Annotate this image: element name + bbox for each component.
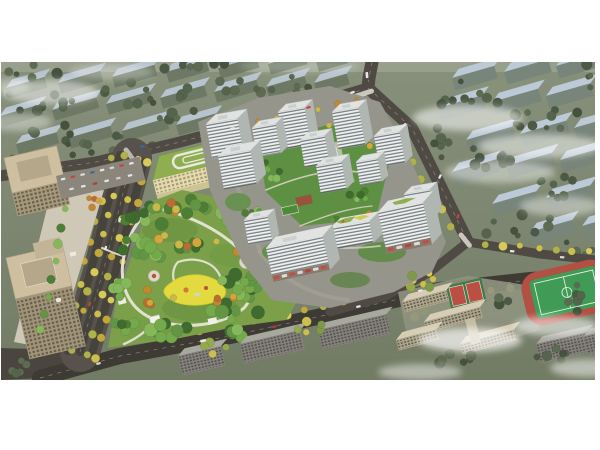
render-area xyxy=(0,44,600,380)
tree xyxy=(568,176,576,184)
tree xyxy=(14,71,20,77)
tree xyxy=(134,199,142,207)
tree xyxy=(564,298,572,306)
tree xyxy=(83,287,92,296)
tree xyxy=(154,319,167,332)
tree xyxy=(586,248,592,254)
tree xyxy=(155,331,166,342)
tree xyxy=(181,207,193,219)
tree xyxy=(105,212,112,219)
play-equipment xyxy=(204,286,208,290)
tree xyxy=(510,227,518,235)
tree xyxy=(95,249,103,257)
tree xyxy=(439,154,445,160)
tree xyxy=(276,168,283,175)
tree xyxy=(91,354,100,363)
tree xyxy=(193,62,203,72)
tree xyxy=(209,350,217,358)
tree xyxy=(534,354,540,360)
tree xyxy=(97,334,105,342)
tree xyxy=(53,258,59,264)
tree xyxy=(482,229,492,239)
tree xyxy=(524,109,530,115)
tree xyxy=(160,63,170,73)
tree xyxy=(460,94,468,102)
tree xyxy=(460,359,467,366)
tree xyxy=(183,242,191,250)
tree xyxy=(133,99,143,109)
tree xyxy=(143,286,151,294)
tree xyxy=(302,317,312,327)
tree xyxy=(294,83,300,89)
tree xyxy=(573,307,582,316)
tree xyxy=(470,145,477,152)
tree xyxy=(301,306,308,313)
tree xyxy=(268,86,275,93)
tree xyxy=(407,283,416,292)
tree xyxy=(357,191,365,199)
tree xyxy=(547,111,557,121)
car xyxy=(365,72,368,78)
tree xyxy=(108,297,115,304)
tree xyxy=(491,219,497,225)
tree xyxy=(113,283,123,293)
tree xyxy=(187,63,194,70)
tree xyxy=(88,330,97,339)
tree xyxy=(550,181,557,188)
tree xyxy=(125,212,135,222)
tree xyxy=(102,316,110,324)
play-equipment xyxy=(183,287,188,292)
tree xyxy=(552,345,560,353)
tree xyxy=(120,152,128,160)
tree xyxy=(65,142,70,147)
tree xyxy=(587,73,593,79)
tree xyxy=(108,154,115,161)
tree xyxy=(47,275,56,284)
tree xyxy=(147,300,153,306)
tree xyxy=(110,193,117,200)
tree xyxy=(70,152,76,158)
tree xyxy=(102,85,110,93)
tree xyxy=(482,241,489,248)
tree xyxy=(192,238,201,247)
tree xyxy=(36,325,44,333)
tree xyxy=(574,282,580,288)
tree xyxy=(536,245,543,252)
tree xyxy=(557,125,564,132)
tree xyxy=(494,293,503,302)
scene-canvas xyxy=(0,0,600,450)
cloud xyxy=(514,316,598,336)
tree xyxy=(86,196,91,201)
tree xyxy=(407,271,416,280)
tree xyxy=(143,87,149,93)
tree xyxy=(223,344,230,351)
slab-roof xyxy=(266,45,312,64)
tree xyxy=(77,281,84,288)
tree xyxy=(52,68,63,79)
tree xyxy=(179,61,187,69)
tree xyxy=(326,122,332,128)
tree xyxy=(155,217,168,230)
tree xyxy=(176,93,184,101)
tree xyxy=(122,236,130,244)
tree xyxy=(587,84,593,90)
tree xyxy=(90,268,98,276)
tree xyxy=(59,103,67,111)
tree xyxy=(96,198,102,204)
tree xyxy=(12,369,21,378)
tree xyxy=(80,307,86,313)
tree xyxy=(528,121,537,130)
tree xyxy=(219,59,229,69)
tree xyxy=(230,86,240,96)
tree xyxy=(16,107,23,114)
cloud xyxy=(240,59,360,73)
cloud xyxy=(445,161,555,183)
tree xyxy=(542,351,552,361)
tree xyxy=(144,241,157,254)
tree xyxy=(84,351,91,358)
tree xyxy=(100,231,107,238)
tree xyxy=(116,293,124,301)
slab-roof xyxy=(314,44,352,61)
tree xyxy=(229,268,242,281)
tree xyxy=(147,96,153,102)
tree xyxy=(303,329,309,335)
tree xyxy=(40,310,48,318)
cloud xyxy=(378,364,462,380)
tree xyxy=(161,232,168,239)
tree xyxy=(18,357,25,364)
cloud xyxy=(70,64,154,80)
tree xyxy=(104,273,112,281)
tree xyxy=(200,342,208,350)
tree xyxy=(112,132,120,140)
tree xyxy=(227,315,235,323)
car xyxy=(510,250,515,253)
tree xyxy=(294,326,302,334)
tree xyxy=(572,108,582,118)
tree xyxy=(171,325,183,337)
tree xyxy=(254,86,260,92)
apartment-tower xyxy=(331,99,374,149)
tree xyxy=(170,294,177,301)
tree xyxy=(117,320,126,329)
tree xyxy=(152,203,160,211)
tree xyxy=(84,140,92,148)
tree xyxy=(559,350,567,358)
tree xyxy=(430,140,438,148)
tree xyxy=(190,107,198,115)
tree xyxy=(215,77,224,86)
courtyard-lawn xyxy=(225,193,251,211)
cloud xyxy=(418,328,522,352)
tree xyxy=(215,305,229,319)
flower-bed xyxy=(152,274,156,278)
tree xyxy=(88,149,94,155)
tree xyxy=(231,324,243,336)
aerial-masterplan-rendering xyxy=(0,0,600,450)
tree xyxy=(549,191,555,197)
tree xyxy=(318,321,326,329)
tree xyxy=(564,240,569,245)
tree xyxy=(157,115,163,121)
cloud xyxy=(478,134,600,158)
tree xyxy=(273,174,281,182)
tree xyxy=(62,206,68,212)
tree xyxy=(230,293,236,299)
tree xyxy=(123,100,133,110)
tree xyxy=(346,191,354,199)
tree xyxy=(498,242,507,251)
tree xyxy=(190,199,201,210)
tree xyxy=(218,276,228,286)
tree xyxy=(183,83,192,92)
tree xyxy=(544,125,549,130)
tree xyxy=(560,173,568,181)
tree xyxy=(568,248,575,255)
tree xyxy=(531,228,540,237)
tree xyxy=(213,238,219,244)
tree xyxy=(175,240,183,248)
tree xyxy=(251,306,264,319)
tree xyxy=(543,221,553,231)
tree xyxy=(482,93,492,103)
tree xyxy=(209,59,219,69)
tree xyxy=(289,74,295,80)
tree xyxy=(367,143,373,149)
tree xyxy=(466,351,476,361)
tree xyxy=(236,77,243,84)
tree xyxy=(173,115,180,122)
tree xyxy=(447,223,455,231)
car xyxy=(560,256,565,259)
tree xyxy=(576,291,585,300)
tree xyxy=(240,277,249,286)
page: { "meta": { "title": "Aerial masterplan … xyxy=(0,0,600,450)
tree xyxy=(117,244,128,255)
tree xyxy=(214,295,221,302)
tree xyxy=(4,67,13,76)
cloud xyxy=(520,196,600,216)
tree xyxy=(139,208,149,218)
tree xyxy=(476,90,483,97)
tree xyxy=(98,291,106,299)
courtyard-lawn xyxy=(330,272,370,288)
tree xyxy=(430,276,437,283)
tree xyxy=(45,294,52,301)
tree xyxy=(475,153,485,163)
tree xyxy=(127,78,136,87)
tree xyxy=(458,79,464,85)
tree xyxy=(94,311,101,318)
tree xyxy=(504,297,512,305)
tree xyxy=(88,204,95,211)
tree xyxy=(315,107,320,112)
cloud xyxy=(413,105,523,131)
tree xyxy=(581,59,592,70)
tree xyxy=(143,158,152,167)
tree xyxy=(30,61,38,69)
tree xyxy=(66,131,73,138)
tree xyxy=(124,196,131,203)
tree xyxy=(172,205,180,213)
tree xyxy=(553,246,560,253)
tree xyxy=(493,98,503,108)
tree xyxy=(437,355,446,364)
tree xyxy=(57,224,66,233)
tree xyxy=(517,242,523,248)
tree xyxy=(222,86,231,95)
tree xyxy=(60,121,69,130)
tree xyxy=(425,282,434,291)
tree xyxy=(53,239,62,248)
tree xyxy=(329,217,335,223)
tree xyxy=(242,209,249,216)
